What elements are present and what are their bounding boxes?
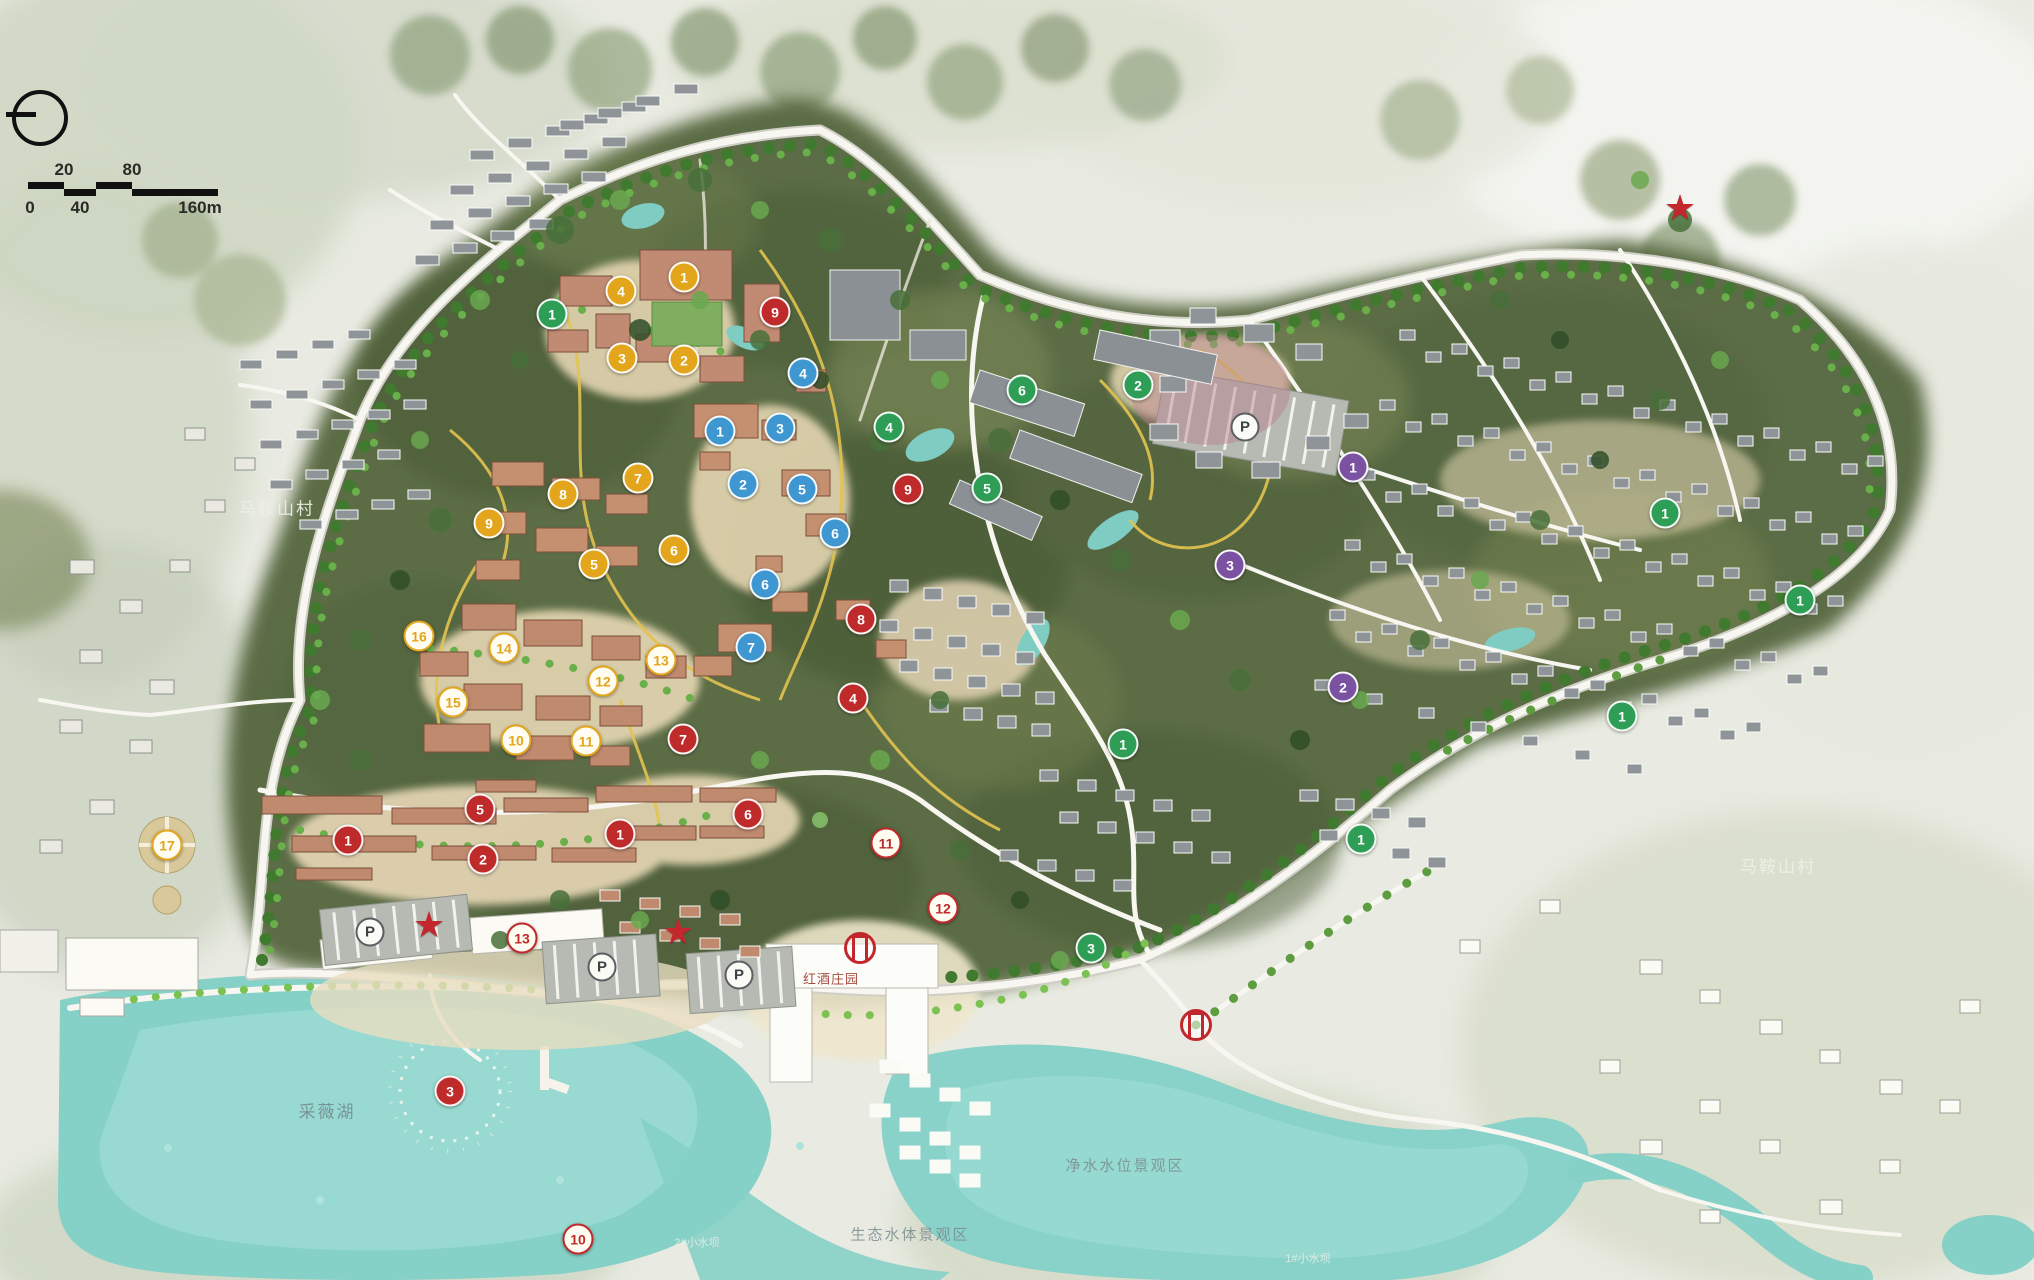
parking-icon: P [725, 961, 754, 990]
marker-yellow-17: 17 [152, 830, 183, 861]
marker-green-1: 1 [1607, 701, 1638, 732]
marker-yellow-16: 16 [404, 621, 435, 652]
marker-red-13: 13 [507, 923, 538, 954]
marker-red-1: 1 [333, 825, 364, 856]
marker-yellow-14: 14 [489, 633, 520, 664]
marker-red-1: 1 [605, 819, 636, 850]
marker-yellow-15: 15 [438, 687, 469, 718]
star-icon: ★ [1664, 190, 1696, 226]
marker-overlay: 1234567891011121314151617123456671245613… [0, 0, 2034, 1280]
marker-green-3: 3 [1076, 933, 1107, 964]
marker-purple-1: 1 [1338, 452, 1369, 483]
marker-green-6: 6 [1007, 375, 1038, 406]
map-label: 红酒庄园 [803, 969, 859, 988]
marker-blue-7: 7 [736, 632, 767, 663]
marker-yellow-2: 2 [669, 345, 700, 376]
marker-green-2: 2 [1123, 370, 1154, 401]
marker-red-6: 6 [733, 799, 764, 830]
marker-yellow-3: 3 [607, 343, 638, 374]
parking-icon: P [1231, 413, 1260, 442]
marker-yellow-10: 10 [501, 725, 532, 756]
marker-red-12: 12 [928, 893, 959, 924]
parking-icon: P [588, 953, 617, 982]
marker-green-5: 5 [972, 473, 1003, 504]
gate-icon [1180, 1009, 1212, 1041]
marker-red-3: 3 [435, 1076, 466, 1107]
marker-red-4: 4 [838, 683, 869, 714]
map-label: 生态水体景观区 [850, 1224, 969, 1245]
marker-purple-3: 3 [1215, 550, 1246, 581]
north-arrow [6, 88, 64, 146]
marker-blue-6: 6 [820, 518, 851, 549]
parking-icon: P [356, 918, 385, 947]
marker-green-1: 1 [537, 299, 568, 330]
gate-icon [844, 932, 876, 964]
marker-red-2: 2 [468, 844, 499, 875]
marker-yellow-7: 7 [623, 463, 654, 494]
marker-green-4: 4 [874, 412, 905, 443]
map-label: 2#小水坝 [674, 1234, 719, 1250]
marker-yellow-13: 13 [646, 645, 677, 676]
site-master-plan-map: 1234567891011121314151617123456671245613… [0, 0, 2034, 1280]
marker-yellow-1: 1 [669, 262, 700, 293]
scale-label-0: 0 [25, 198, 34, 218]
marker-yellow-5: 5 [579, 549, 610, 580]
marker-green-1: 1 [1346, 824, 1377, 855]
scale-label-160m: 160m [178, 198, 221, 218]
map-label: 净水水位景观区 [1065, 1155, 1184, 1176]
marker-red-9: 9 [760, 297, 791, 328]
marker-blue-4: 4 [788, 358, 819, 389]
marker-blue-2: 2 [728, 469, 759, 500]
marker-yellow-12: 12 [588, 666, 619, 697]
marker-yellow-6: 6 [659, 535, 690, 566]
marker-red-11: 11 [871, 828, 902, 859]
marker-purple-2: 2 [1328, 672, 1359, 703]
star-icon: ★ [413, 907, 445, 943]
marker-blue-6: 6 [750, 569, 781, 600]
map-label: 马鞍山村 [239, 495, 315, 520]
marker-red-8: 8 [846, 604, 877, 635]
marker-red-9: 9 [893, 474, 924, 505]
map-label: 1#小水坝 [1285, 1250, 1330, 1266]
scale-bar: 20 80 0 40 160m [28, 160, 218, 218]
marker-red-5: 5 [465, 794, 496, 825]
marker-blue-5: 5 [787, 474, 818, 505]
marker-blue-3: 3 [765, 413, 796, 444]
marker-yellow-9: 9 [474, 508, 505, 539]
scale-label-40: 40 [71, 198, 90, 218]
marker-yellow-11: 11 [571, 726, 602, 757]
marker-yellow-4: 4 [606, 276, 637, 307]
scale-label-20: 20 [55, 160, 74, 180]
map-label: 马鞍山村 [1740, 853, 1816, 878]
scale-bar-segments [28, 182, 178, 196]
marker-red-7: 7 [668, 724, 699, 755]
marker-green-1: 1 [1785, 585, 1816, 616]
marker-green-1: 1 [1650, 498, 1681, 529]
scale-label-80: 80 [123, 160, 142, 180]
marker-yellow-8: 8 [548, 479, 579, 510]
marker-blue-1: 1 [705, 416, 736, 447]
marker-red-10: 10 [563, 1224, 594, 1255]
marker-green-1: 1 [1108, 729, 1139, 760]
north-tick [6, 112, 36, 117]
north-ring [12, 90, 68, 146]
star-icon: ★ [662, 914, 694, 950]
map-label: 采薇湖 [299, 1098, 356, 1123]
